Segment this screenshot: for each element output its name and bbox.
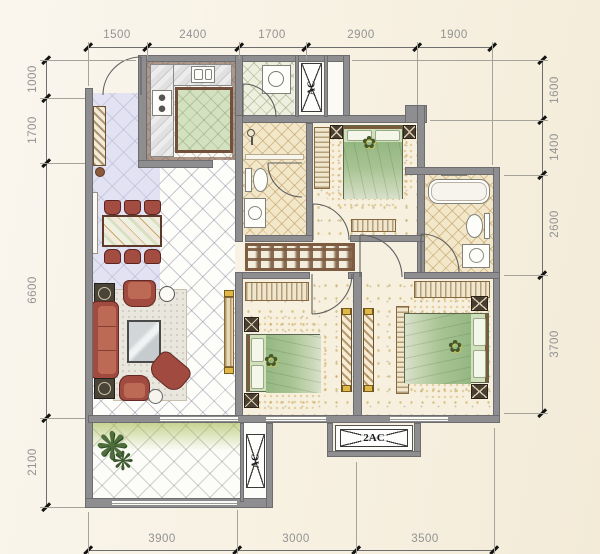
extension-line xyxy=(40,98,85,99)
shower-head-icon xyxy=(247,129,255,137)
dining-chair xyxy=(144,200,161,215)
plant-glyph: ❋ xyxy=(112,446,134,476)
extension-line xyxy=(88,42,89,86)
dim-label-left-2: 6600 xyxy=(27,276,39,304)
extension-line xyxy=(430,120,548,121)
extension-line xyxy=(504,413,548,414)
vase xyxy=(95,167,105,177)
sink-1-bowl xyxy=(248,206,262,220)
wall-ac-block-right xyxy=(343,55,350,122)
wall-bathroom2-top xyxy=(405,167,500,175)
dimension-line-left xyxy=(46,60,47,507)
panel-handle xyxy=(364,308,373,315)
sliding-door-balcony xyxy=(160,416,238,422)
wall-hall-bottom-a xyxy=(237,272,310,279)
toilet-2-tank xyxy=(484,213,490,239)
round-table xyxy=(148,389,163,404)
shower-curb xyxy=(245,154,304,160)
kitchen-sink-bowl-2 xyxy=(205,69,212,80)
floor-lamp xyxy=(159,286,175,302)
flower-motif: ✿ xyxy=(264,352,278,369)
bed-bedroom-2 xyxy=(246,334,320,392)
toilet-2-bowl xyxy=(466,214,483,238)
dim-label-left-3: 2100 xyxy=(27,448,39,476)
shower-head-arm xyxy=(251,137,253,145)
pillow xyxy=(251,365,264,389)
dining-table xyxy=(102,215,162,247)
nightstand xyxy=(244,317,259,332)
extension-line xyxy=(504,175,548,176)
tv-cabinet-end xyxy=(224,367,234,374)
dim-label-bottom-2: 3500 xyxy=(411,533,439,545)
panel-handle xyxy=(364,385,373,392)
toilet-1-bowl xyxy=(253,168,268,192)
pillow xyxy=(375,130,400,141)
extension-line xyxy=(504,275,548,276)
extension-line xyxy=(494,428,495,554)
tv-cabinet xyxy=(224,297,234,367)
dining-chair xyxy=(104,200,121,215)
dim-label-top-2: 1700 xyxy=(258,29,286,41)
coffee-table xyxy=(127,320,161,363)
wall-bedroom1-left xyxy=(306,123,313,242)
kitchen-island xyxy=(175,87,233,153)
toilet-1-tank xyxy=(245,168,252,192)
floor-plan: ✿ ✿ ✿ ❋ ❋ xyxy=(0,0,600,554)
dim-label-bottom-1: 3000 xyxy=(282,533,310,545)
wall-bedroom1-right xyxy=(417,105,425,279)
sink-2-bowl xyxy=(469,248,484,263)
wall-hall-top-a xyxy=(245,235,313,242)
ac-label-top: AC xyxy=(307,81,318,95)
wall-mid-lower xyxy=(235,272,243,423)
2ac-label: 2AC xyxy=(361,432,386,444)
plant: ❋ xyxy=(112,446,134,477)
dim-label-right-2: 2600 xyxy=(549,210,561,238)
flower-motif: ✿ xyxy=(448,338,462,355)
dining-chair xyxy=(124,200,141,215)
extension-line xyxy=(417,42,418,105)
kitchen-sink-bowl xyxy=(194,69,203,80)
wall-hall-bottom-c xyxy=(404,272,500,279)
wall-ac-top-left xyxy=(295,55,299,117)
nightstand xyxy=(403,125,416,139)
extension-line xyxy=(88,512,89,554)
dim-label-left-1: 1700 xyxy=(27,116,39,144)
window-balcony xyxy=(112,500,237,506)
wall-hall-top-b xyxy=(350,235,425,242)
wall-ac-closet-right xyxy=(266,423,273,508)
dim-label-top-1: 2400 xyxy=(179,29,207,41)
dining-chair xyxy=(124,249,141,264)
extension-line xyxy=(147,42,148,59)
dresser-bedroom-1 xyxy=(351,219,396,232)
flower-motif: ✿ xyxy=(362,134,376,151)
wall-outer-left xyxy=(85,88,93,508)
dim-label-left-0: 1000 xyxy=(27,65,39,93)
wall-kitchen-right xyxy=(235,55,243,123)
wall-outer-right xyxy=(493,167,500,423)
extension-line xyxy=(40,60,136,61)
sliding-door-panel xyxy=(363,308,374,392)
window-bedroom-2 xyxy=(266,416,326,422)
dim-label-top-3: 2900 xyxy=(347,29,375,41)
sliding-door-panel xyxy=(341,308,352,392)
nightstand xyxy=(471,384,488,399)
door-arc-entry xyxy=(103,57,141,95)
wall-ac-top-right xyxy=(324,55,328,117)
nightstand xyxy=(471,296,488,311)
wall-ac-closet-left xyxy=(240,423,244,502)
armchair-cushion xyxy=(124,383,145,398)
extension-line xyxy=(237,510,238,554)
extension-line xyxy=(356,462,357,554)
wardrobe-bedroom-2 xyxy=(245,282,309,301)
extension-line xyxy=(40,507,85,508)
dining-chair xyxy=(104,249,121,264)
headboard xyxy=(344,126,402,129)
pillow xyxy=(473,318,486,346)
dining-chair xyxy=(144,249,161,264)
dim-label-bottom-0: 3900 xyxy=(148,533,176,545)
washing-machine-drum xyxy=(268,71,284,87)
bathtub-inner xyxy=(431,182,487,201)
nightstand xyxy=(330,125,343,139)
dim-label-right-0: 1600 xyxy=(549,76,561,104)
wall-bedroom1-top xyxy=(235,115,427,123)
panel-handle xyxy=(342,308,351,315)
sofa-cushions xyxy=(98,306,116,374)
wall-top xyxy=(138,55,350,62)
wall-kitchen-left xyxy=(138,55,147,168)
wall-2ac-bottom xyxy=(327,451,421,457)
pillow xyxy=(251,338,264,362)
extension-line xyxy=(239,42,240,59)
ac-label-balcony: AC xyxy=(251,454,262,468)
nightstand xyxy=(244,393,259,408)
wall-bedroom2-3 xyxy=(353,272,362,423)
foyer-cabinet xyxy=(93,106,106,166)
wall-mid-upper xyxy=(235,115,243,242)
panel-handle xyxy=(342,385,351,392)
window-bedroom-3 xyxy=(390,416,448,422)
dimension-line-right xyxy=(542,60,543,413)
pillow xyxy=(473,350,486,378)
extension-line xyxy=(306,42,307,59)
extension-line xyxy=(352,60,548,61)
bed-bedroom-3 xyxy=(404,313,489,383)
headboard xyxy=(247,335,250,391)
extension-line xyxy=(40,163,85,164)
stove xyxy=(152,90,172,116)
wardrobe-bedroom-1 xyxy=(314,127,330,189)
side-table-lamp xyxy=(94,378,115,399)
dimension-line-bottom xyxy=(88,550,494,551)
dim-label-top-0: 1500 xyxy=(103,29,131,41)
tv-cabinet-end xyxy=(224,290,234,297)
dim-label-right-3: 3700 xyxy=(549,330,561,358)
wall-kitchen-bottom xyxy=(138,160,213,168)
armchair-cushion xyxy=(128,282,151,299)
extension-line xyxy=(40,418,85,419)
dim-label-right-1: 1400 xyxy=(549,133,561,161)
hallway-runner-rug xyxy=(245,243,355,271)
dim-label-top-4: 1900 xyxy=(440,29,468,41)
